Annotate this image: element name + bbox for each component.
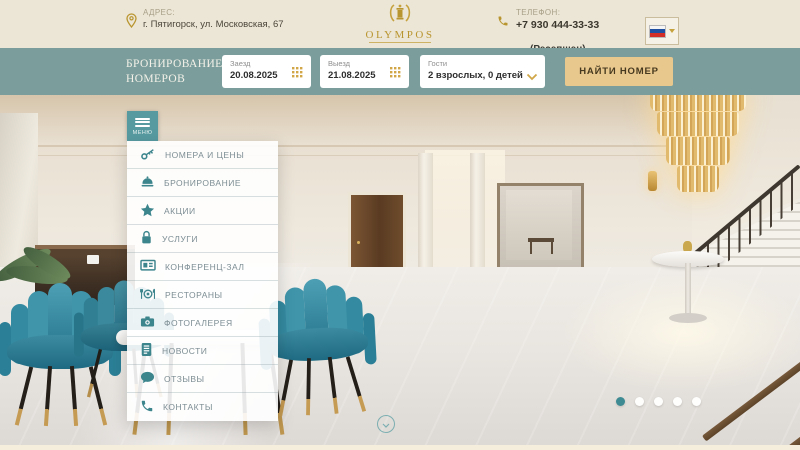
menu-item-promotions[interactable]: АКЦИИ — [127, 197, 278, 225]
chevron-down-icon — [382, 415, 390, 433]
carousel-dots — [616, 397, 701, 406]
menu-item-restaurants[interactable]: РЕСТОРАНЫ — [127, 281, 278, 309]
reflected-table-leg — [551, 242, 553, 254]
chevron-down-icon — [526, 68, 538, 86]
address-block: АДРЕС: г. Пятигорск, ул. Московская, 67 — [126, 8, 284, 33]
reflected-table-leg — [530, 242, 532, 254]
phone-block: ТЕЛЕФОН: +7 930 444-33-33 (Ресепшен) — [497, 8, 599, 32]
chevron-down-icon — [669, 29, 675, 33]
checkin-field[interactable]: Заезд 20.08.2025 — [222, 55, 311, 88]
logo-text: OLYMPOS — [345, 29, 455, 41]
presentation-icon — [140, 259, 156, 274]
checkout-field[interactable]: Выезд 21.08.2025 — [320, 55, 409, 88]
laurel-column-emblem-icon — [385, 10, 415, 27]
restaurant-icon — [140, 287, 156, 303]
phone-icon — [497, 14, 509, 32]
menu-item-photo-gallery[interactable]: ФОТОГАЛЕРЕЯ — [127, 309, 278, 337]
carousel-dot[interactable] — [635, 397, 644, 406]
language-selector[interactable] — [645, 17, 679, 45]
camera-icon — [140, 315, 155, 330]
lock-icon — [140, 230, 153, 247]
calendar-icon — [292, 66, 304, 84]
booking-bar: БРОНИРОВАНИЕ НОМЕРОВ Заезд 20.08.2025 Вы… — [0, 48, 800, 95]
menu-item-contacts[interactable]: КОНТАКТЫ — [127, 393, 278, 421]
newspaper-icon — [140, 342, 153, 359]
map-pin-icon — [126, 13, 137, 33]
booking-title: БРОНИРОВАНИЕ НОМЕРОВ — [126, 57, 223, 87]
menu-item-conference-hall[interactable]: КОНФЕРЕНЦ-ЗАЛ — [127, 253, 278, 281]
menu-item-reviews[interactable]: ОТЗЫВЫ — [127, 365, 278, 393]
guests-field[interactable]: Гости 2 взрослых, 0 детей — [420, 55, 545, 88]
carousel-dot[interactable] — [673, 397, 682, 406]
hamburger-icon — [135, 116, 150, 128]
menu-toggle-button[interactable]: МЕНЮ — [127, 111, 158, 141]
phone-number[interactable]: +7 930 444-33-33 — [516, 19, 599, 31]
menu-item-booking[interactable]: БРОНИРОВАНИЕ — [127, 169, 278, 197]
booking-title-line1: БРОНИРОВАНИЕ — [126, 57, 223, 72]
carousel-dot[interactable] — [692, 397, 701, 406]
phone-icon — [140, 399, 154, 415]
booking-title-line2: НОМЕРОВ — [126, 72, 223, 87]
calendar-icon — [390, 66, 402, 84]
topbar: АДРЕС: г. Пятигорск, ул. Московская, 67 … — [0, 0, 800, 48]
address-value: г. Пятигорск, ул. Московская, 67 — [143, 19, 284, 30]
main-menu-panel: НОМЕРА И ЦЕНЫ БРОНИРОВАНИЕ АКЦИИ УСЛУГИ … — [127, 141, 278, 421]
address-label: АДРЕС: — [143, 8, 284, 17]
logo[interactable]: OLYMPOS — [345, 3, 455, 49]
next-section-edge — [0, 445, 800, 450]
guests-label: Гости — [428, 59, 537, 68]
star-icon — [140, 203, 155, 219]
chandelier — [650, 95, 746, 192]
hero-slider: МЕНЮ НОМЕРА И ЦЕНЫ БРОНИРОВАНИЕ АКЦИИ УС… — [0, 95, 800, 450]
ceiling-molding — [0, 155, 690, 156]
chat-icon — [140, 371, 155, 386]
key-icon — [140, 147, 156, 163]
ceiling-molding — [0, 145, 700, 147]
menu-item-services[interactable]: УСЛУГИ — [127, 225, 278, 253]
scroll-down-indicator[interactable] — [377, 415, 395, 433]
menu-toggle-label: МЕНЮ — [133, 130, 153, 136]
mirror-reflection — [506, 190, 572, 260]
guests-value: 2 взрослых, 0 детей — [428, 70, 537, 81]
phone-label: ТЕЛЕФОН: — [516, 8, 599, 17]
carousel-dot-active[interactable] — [616, 397, 625, 406]
reception-monitor — [87, 255, 99, 264]
russian-flag-icon — [649, 25, 666, 38]
carousel-dot[interactable] — [654, 397, 663, 406]
find-room-button[interactable]: НАЙТИ НОМЕР — [565, 57, 673, 86]
menu-item-rooms[interactable]: НОМЕРА И ЦЕНЫ — [127, 141, 278, 169]
doorway-mirror — [497, 183, 584, 271]
service-bell-icon — [140, 175, 155, 191]
door-knob — [357, 241, 360, 244]
pedestal-table — [652, 245, 724, 331]
menu-item-news[interactable]: НОВОСТИ — [127, 337, 278, 365]
